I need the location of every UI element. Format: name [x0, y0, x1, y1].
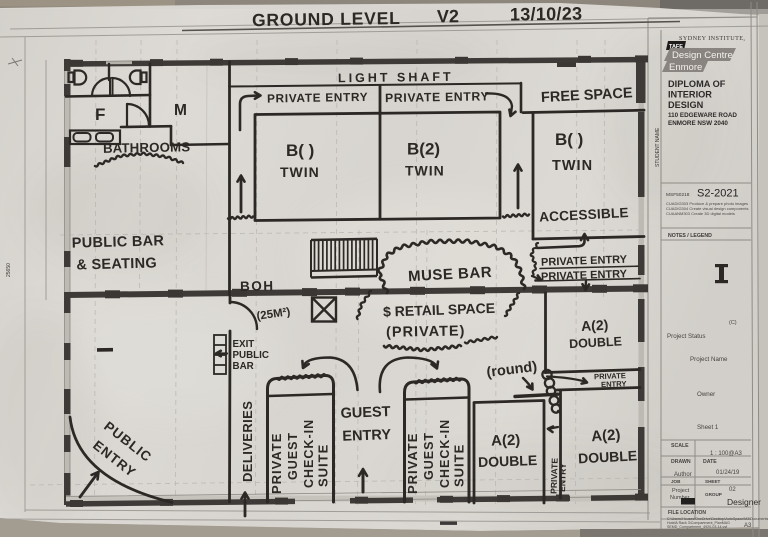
svg-text:DOUBLE: DOUBLE [578, 447, 638, 466]
svg-text:ENTRY: ENTRY [342, 427, 391, 445]
svg-text:Project: Project [672, 488, 690, 494]
svg-text:13/10/23: 13/10/23 [510, 3, 583, 24]
svg-text:F: F [95, 105, 105, 124]
svg-text:DELIVERIES: DELIVERIES [240, 401, 255, 482]
svg-text:A(2): A(2) [491, 432, 521, 450]
svg-text:SYDNEY INSTITUTE,: SYDNEY INSTITUTE, [679, 35, 745, 42]
svg-text:(PRIVATE): (PRIVATE) [386, 323, 466, 340]
svg-text:PUBLIC BAR: PUBLIC BAR [72, 233, 165, 251]
svg-text:MSF50218: MSF50218 [666, 192, 690, 198]
svg-text:TWIN: TWIN [552, 158, 593, 174]
svg-text:Project Status: Project Status [667, 333, 706, 340]
svg-text:25650: 25650 [6, 263, 12, 277]
svg-text:PRIVATE ENTRY: PRIVATE ENTRY [267, 90, 369, 106]
svg-text:Project Name: Project Name [690, 356, 728, 363]
svg-text:DOUBLE: DOUBLE [478, 452, 538, 470]
svg-text:V2: V2 [437, 6, 459, 26]
svg-text:Design Centre: Design Centre [672, 50, 733, 61]
svg-text:SUITE: SUITE [316, 444, 331, 487]
svg-text:PUBLIC: PUBLIC [233, 350, 269, 361]
svg-text:GROUP: GROUP [705, 492, 722, 497]
svg-text:JOB: JOB [671, 479, 681, 484]
svg-text:(C): (C) [729, 320, 737, 326]
svg-text:LIGHT SHAFT: LIGHT SHAFT [338, 70, 454, 85]
svg-text:SEMD_Compartment_4920-03-14.vs: SEMD_Compartment_4920-03-14.vsf [667, 525, 727, 529]
svg-text:PRIVATE: PRIVATE [269, 433, 284, 494]
svg-text:Enmore: Enmore [669, 62, 702, 73]
svg-text:A3: A3 [744, 523, 752, 529]
svg-text:BAR: BAR [233, 361, 254, 372]
svg-text:GUEST: GUEST [286, 432, 300, 480]
svg-text:110 EDGEWARE ROAD: 110 EDGEWARE ROAD [668, 112, 737, 119]
svg-text:STUDENT NAME: STUDENT NAME [655, 127, 661, 167]
svg-text:Author: Author [674, 472, 692, 478]
svg-text:ENMORE NSW 2040: ENMORE NSW 2040 [668, 120, 728, 127]
svg-text:S2-2021: S2-2021 [697, 188, 739, 200]
svg-text:B( ): B( ) [555, 130, 583, 149]
svg-text:Designer: Designer [727, 497, 761, 507]
svg-text:GUEST: GUEST [340, 404, 391, 422]
svg-text:SUITE: SUITE [452, 444, 467, 487]
svg-text:DIPLOMA OF: DIPLOMA OF [668, 79, 726, 89]
svg-text:SHEET: SHEET [705, 479, 721, 484]
svg-text:CHECK-IN: CHECK-IN [438, 419, 452, 488]
svg-text:Owner: Owner [697, 391, 715, 398]
svg-text:B( ): B( ) [286, 141, 314, 160]
svg-text:A(2): A(2) [591, 426, 621, 445]
svg-text:M: M [174, 102, 187, 119]
svg-text:& SEATING: & SEATING [76, 255, 157, 273]
svg-text:Sheet 1: Sheet 1 [697, 424, 719, 431]
svg-text:02: 02 [729, 487, 736, 493]
svg-text:CUAANM303 Create 3D digital mo: CUAANM303 Create 3D digital models [666, 211, 735, 216]
svg-text:B(2): B(2) [407, 140, 440, 159]
svg-text:FILE LOCATION: FILE LOCATION [668, 510, 706, 516]
svg-text:EXIT: EXIT [233, 339, 255, 350]
svg-text:ENTRY: ENTRY [557, 463, 568, 492]
svg-text:DRAWN: DRAWN [671, 459, 691, 465]
svg-text:DOUBLE: DOUBLE [569, 334, 622, 351]
svg-text:SCALE: SCALE [671, 443, 689, 449]
svg-text:BATHROOMS: BATHROOMS [103, 139, 191, 156]
svg-text:NOTES / LEGEND: NOTES / LEGEND [668, 233, 712, 239]
svg-text:1 : 100@A3: 1 : 100@A3 [710, 451, 742, 457]
svg-text:01/24/19: 01/24/19 [716, 470, 740, 476]
svg-text:CHECK-IN: CHECK-IN [302, 419, 316, 488]
svg-text:PRIVATE ENTRY: PRIVATE ENTRY [385, 89, 490, 105]
svg-text:BOH: BOH [240, 278, 275, 294]
svg-text:TWIN: TWIN [405, 163, 445, 179]
svg-text:GUEST: GUEST [422, 432, 436, 480]
svg-text:INTERIOR: INTERIOR [668, 90, 712, 100]
svg-text:DESIGN: DESIGN [668, 100, 704, 110]
svg-text:A(2): A(2) [581, 317, 609, 334]
svg-text:DATE: DATE [703, 459, 717, 465]
svg-text:PRIVATE: PRIVATE [405, 433, 420, 494]
svg-text:TWIN: TWIN [280, 164, 320, 180]
